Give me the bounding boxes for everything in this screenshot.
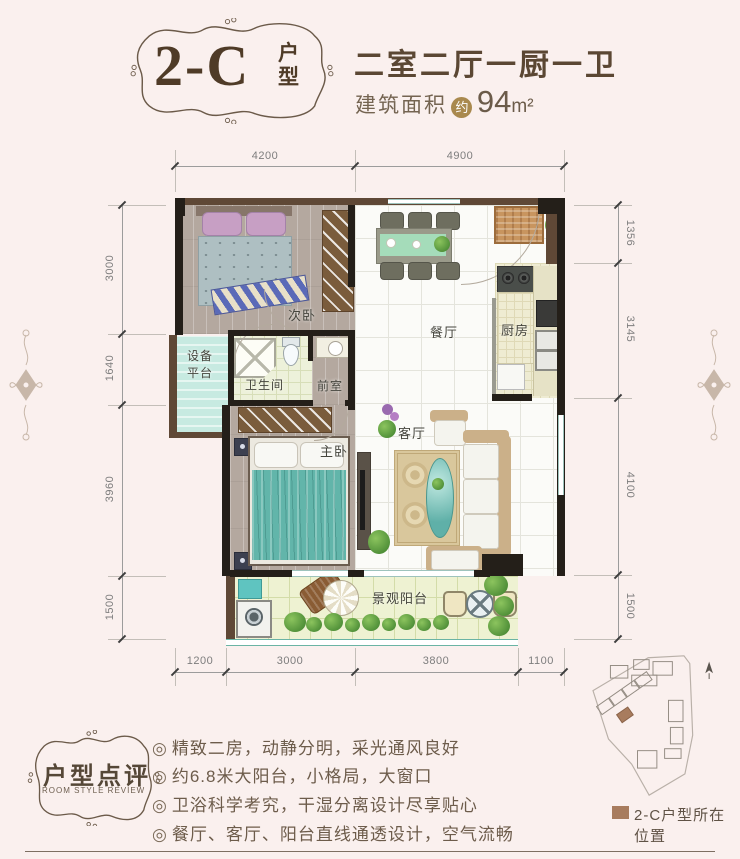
dim-right-3: 4100	[624, 465, 636, 505]
dim-guide	[574, 263, 632, 264]
kitchen-cabinet	[497, 364, 525, 390]
dim-guide	[355, 648, 356, 686]
dim-line-bottom	[175, 672, 565, 673]
wall-master-bottom	[230, 570, 292, 577]
area-line: 建筑面积 约 94m²	[355, 84, 534, 120]
dim-top-1: 4200	[245, 150, 285, 162]
kitchen-stove	[497, 266, 535, 294]
stove-burner	[502, 272, 514, 284]
balcony-corner-bush	[484, 574, 508, 596]
wall-top	[175, 198, 565, 205]
wall-master-top-left	[230, 400, 313, 406]
balcony-basin	[238, 579, 262, 599]
balcony-chair	[443, 591, 467, 617]
balcony-corner-bush	[494, 596, 514, 616]
dim-guide	[175, 150, 176, 192]
dim-guide	[108, 205, 166, 206]
area-approx-badge: 约	[451, 97, 472, 118]
balcony-bush	[362, 614, 380, 631]
wall-balcony-left	[226, 576, 235, 642]
stove-burner	[518, 272, 530, 284]
bullet-icon: ◎	[152, 825, 168, 844]
balcony-bush	[306, 617, 322, 632]
bedroom2-pillow	[246, 212, 286, 236]
compass-icon	[705, 662, 713, 679]
dim-left-1: 3000	[104, 248, 116, 288]
area-unit: m²	[511, 96, 533, 117]
wall-equipment-outer	[169, 335, 177, 438]
bullet-text: 餐厅、客厅、阳台直线通透设计，空气流畅	[172, 825, 514, 844]
layout-description: 二室二厅一厨一卫	[354, 40, 618, 84]
room-label-balcony: 景观阳台	[372, 588, 428, 607]
washing-machine	[236, 600, 272, 638]
wall-kitchen-bottom	[492, 394, 532, 401]
floorplan-flyer: 2-C 户 型 二室二厅一厨一卫 建筑面积 约 94m² 4200 4900 3…	[0, 0, 740, 859]
room-label-master: 主卧	[320, 441, 348, 460]
bullet-icon: ◎	[152, 739, 168, 758]
room-label-bathroom: 卫生间	[245, 376, 284, 393]
unit-badge: 2-C 户 型	[126, 18, 338, 124]
left-flourish-ornament	[6, 325, 46, 445]
window-top-dining	[388, 199, 460, 204]
dining-chair	[380, 262, 404, 280]
bench-cushion	[431, 550, 479, 570]
area-value: 94	[477, 84, 511, 119]
dim-guide	[108, 334, 166, 335]
dim-left-3: 3960	[104, 469, 116, 509]
window-living-balcony	[364, 570, 474, 577]
site-map	[573, 650, 733, 800]
wall-left-upper	[175, 205, 183, 335]
bullet-text: 卫浴科学考究，干湿分离设计尽享贴心	[172, 796, 478, 815]
armchair-seat	[434, 420, 466, 446]
dim-right-1: 1356	[624, 213, 636, 253]
right-flourish-ornament	[694, 325, 734, 445]
balcony-bush	[433, 615, 449, 630]
dim-left-2: 1640	[104, 348, 116, 388]
wall-master-left	[222, 405, 230, 576]
dining-chair	[436, 262, 460, 280]
dim-bottom-2: 3000	[270, 655, 310, 667]
basin	[328, 341, 343, 356]
legend-label: 2-C户型所在位置	[634, 804, 740, 846]
review-badge: 户型点评 ROOM STYLE REVIEW	[26, 730, 162, 826]
balcony-bush	[417, 618, 431, 631]
bedroom2-pillow	[202, 212, 242, 236]
dim-guide	[564, 150, 565, 192]
room-label-vestibule: 前室	[317, 377, 343, 394]
dim-guide	[108, 576, 166, 577]
parasol-umbrella	[323, 580, 359, 616]
balcony-railing-window	[226, 639, 518, 646]
dim-guide	[226, 648, 227, 686]
room-label-equipment: 设备平台	[187, 348, 217, 382]
site-map-highlight	[617, 707, 634, 723]
bullet-text: 精致二房，动静分明，采光通风良好	[172, 739, 460, 758]
dim-guide	[564, 648, 565, 686]
dim-guide	[108, 639, 166, 640]
review-badge-subtitle: ROOM STYLE REVIEW	[42, 786, 145, 795]
coffee-table-plant	[432, 478, 444, 490]
master-blanket	[252, 470, 346, 560]
dim-bottom-4: 1100	[521, 655, 561, 667]
room-label-kitchen: 厨房	[501, 320, 529, 339]
wall-right	[557, 214, 565, 576]
wall-equipment-bottom	[169, 432, 229, 438]
master-pillow	[254, 442, 298, 468]
dining-plate	[386, 238, 396, 248]
tv-screen	[360, 470, 365, 530]
dim-right-2: 3145	[624, 309, 636, 349]
wall-bathroom-top	[228, 330, 355, 336]
dim-guide	[574, 205, 632, 206]
unit-word-bottom: 型	[278, 66, 299, 90]
window-master-balcony	[292, 570, 348, 577]
nightstand-lamp	[240, 558, 245, 563]
sofa-armrest	[463, 430, 509, 443]
review-bullet-4: ◎餐厅、客厅、阳台直线通透设计，空气流畅	[152, 820, 514, 845]
review-bullet-1: ◎精致二房，动静分明，采光通风良好	[152, 734, 460, 759]
balcony-corner-bush	[488, 616, 510, 636]
footer-divider	[25, 851, 715, 852]
window-living-right	[558, 415, 564, 495]
dim-left-4: 1500	[104, 587, 116, 627]
sofa-cushion	[463, 514, 499, 549]
bullet-icon: ◎	[152, 767, 168, 786]
review-bullet-2: ◎约6.8米大阳台，小格局，大窗口	[152, 762, 432, 787]
dim-right-4: 1500	[624, 586, 636, 626]
balcony-bush	[324, 613, 343, 631]
dim-guide	[355, 150, 356, 192]
dim-top-2: 4900	[440, 150, 480, 162]
nightstand-lamp	[240, 444, 245, 449]
washer-drum	[245, 608, 263, 626]
dim-guide	[108, 405, 166, 406]
sofa-cushion	[463, 479, 499, 514]
dining-plate	[412, 240, 421, 249]
dim-bottom-1: 1200	[180, 655, 220, 667]
unit-word: 户 型	[278, 42, 299, 90]
dim-guide	[518, 648, 519, 686]
wall-bath-vestibule	[308, 336, 313, 361]
dim-guide	[574, 398, 632, 399]
wall-stub-bottom	[348, 570, 364, 577]
balcony-bush	[345, 618, 360, 632]
wall-vestibule-right	[348, 330, 355, 410]
bullet-text: 约6.8米大阳台，小格局，大窗口	[172, 767, 433, 786]
legend-swatch	[612, 806, 629, 819]
dining-chair	[408, 262, 432, 280]
balcony-bush	[382, 618, 396, 631]
wall-stub-bottom2	[474, 570, 490, 577]
dim-line-top	[175, 166, 565, 167]
area-prefix: 建筑面积	[355, 94, 447, 117]
kitchen-appliance	[536, 300, 558, 327]
bullet-icon: ◎	[152, 796, 168, 815]
rug-medallion	[402, 502, 428, 528]
room-label-dining: 餐厅	[430, 322, 458, 341]
coffee-table	[426, 458, 454, 538]
unit-code: 2-C	[154, 32, 250, 99]
sofa-back	[497, 436, 511, 556]
balcony-bush	[284, 612, 306, 632]
dining-table-plant	[434, 236, 450, 252]
review-bullet-3: ◎卫浴科学考究，干湿分离设计尽享贴心	[152, 791, 478, 816]
dim-guide	[574, 639, 632, 640]
wall-kitchen-left	[492, 298, 496, 398]
rug-medallion	[402, 462, 428, 488]
living-plant	[368, 530, 390, 554]
room-label-bedroom2: 次卧	[288, 305, 316, 324]
wall-master-top-right	[345, 400, 355, 406]
room-label-living: 客厅	[398, 423, 426, 442]
wall-corner-tr	[538, 198, 565, 214]
balcony-bush	[398, 614, 415, 630]
wall-bathroom-left	[228, 334, 234, 405]
dim-bottom-3: 3800	[416, 655, 456, 667]
dim-guide	[175, 648, 176, 686]
dim-guide	[574, 575, 632, 576]
unit-word-top: 户	[278, 42, 299, 66]
wall-bedroom2-right	[348, 205, 355, 287]
sofa-cushion	[463, 444, 499, 479]
